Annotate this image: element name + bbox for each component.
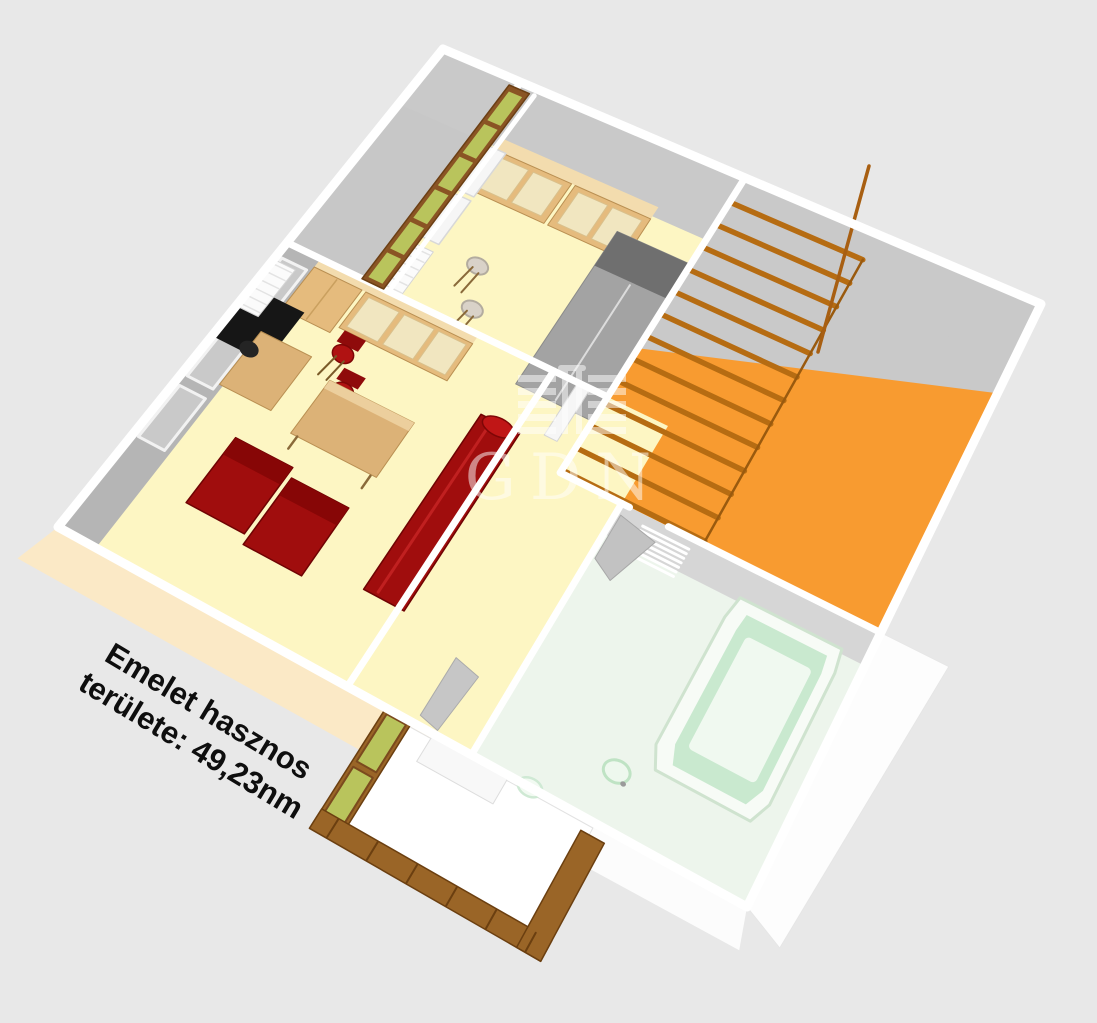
floorplan-canvas: GDN Emelet hasznos területe: 49,23nm — [0, 0, 1097, 1023]
gdn-watermark-text: GDN — [465, 441, 665, 515]
floorplan-3d-render: GDN Emelet hasznos területe: 49,23nm — [0, 0, 1097, 1023]
